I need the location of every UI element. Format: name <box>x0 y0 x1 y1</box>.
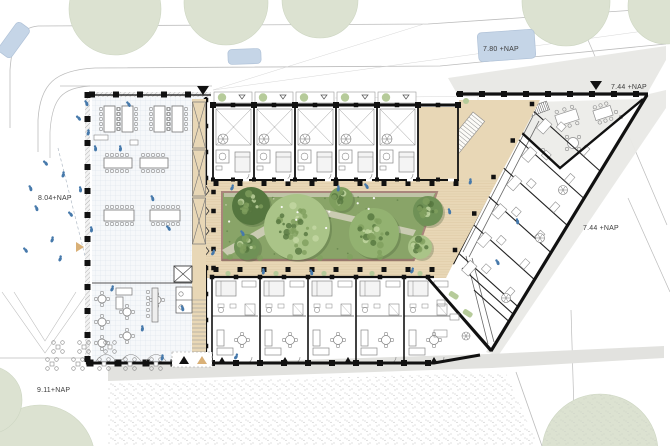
elevation-label-terrace-bottomleft: 9.11+NAP <box>37 387 70 394</box>
site-plan-page: 7.80 +NAP 7.44 +NAP 7.44 +NAP 8.04+NAP 9… <box>0 0 670 446</box>
black-triangle-icon <box>219 357 225 362</box>
elevation-label-street-right: 7.44 +NAP <box>583 225 619 232</box>
site-plan-drawing <box>0 0 670 446</box>
elevation-label-road-top: 7.80 +NAP <box>483 46 519 53</box>
top-wing <box>210 92 461 182</box>
tan-triangle-icon <box>76 242 84 252</box>
black-triangle-icon <box>282 357 288 362</box>
left-block <box>85 92 212 367</box>
elevation-label-plaza-topright: 7.44 +NAP <box>611 84 647 91</box>
elevation-label-forecourt-left: 8.04+NAP <box>38 195 72 202</box>
gravel-field <box>108 373 538 446</box>
courtyard-garden <box>222 187 445 262</box>
